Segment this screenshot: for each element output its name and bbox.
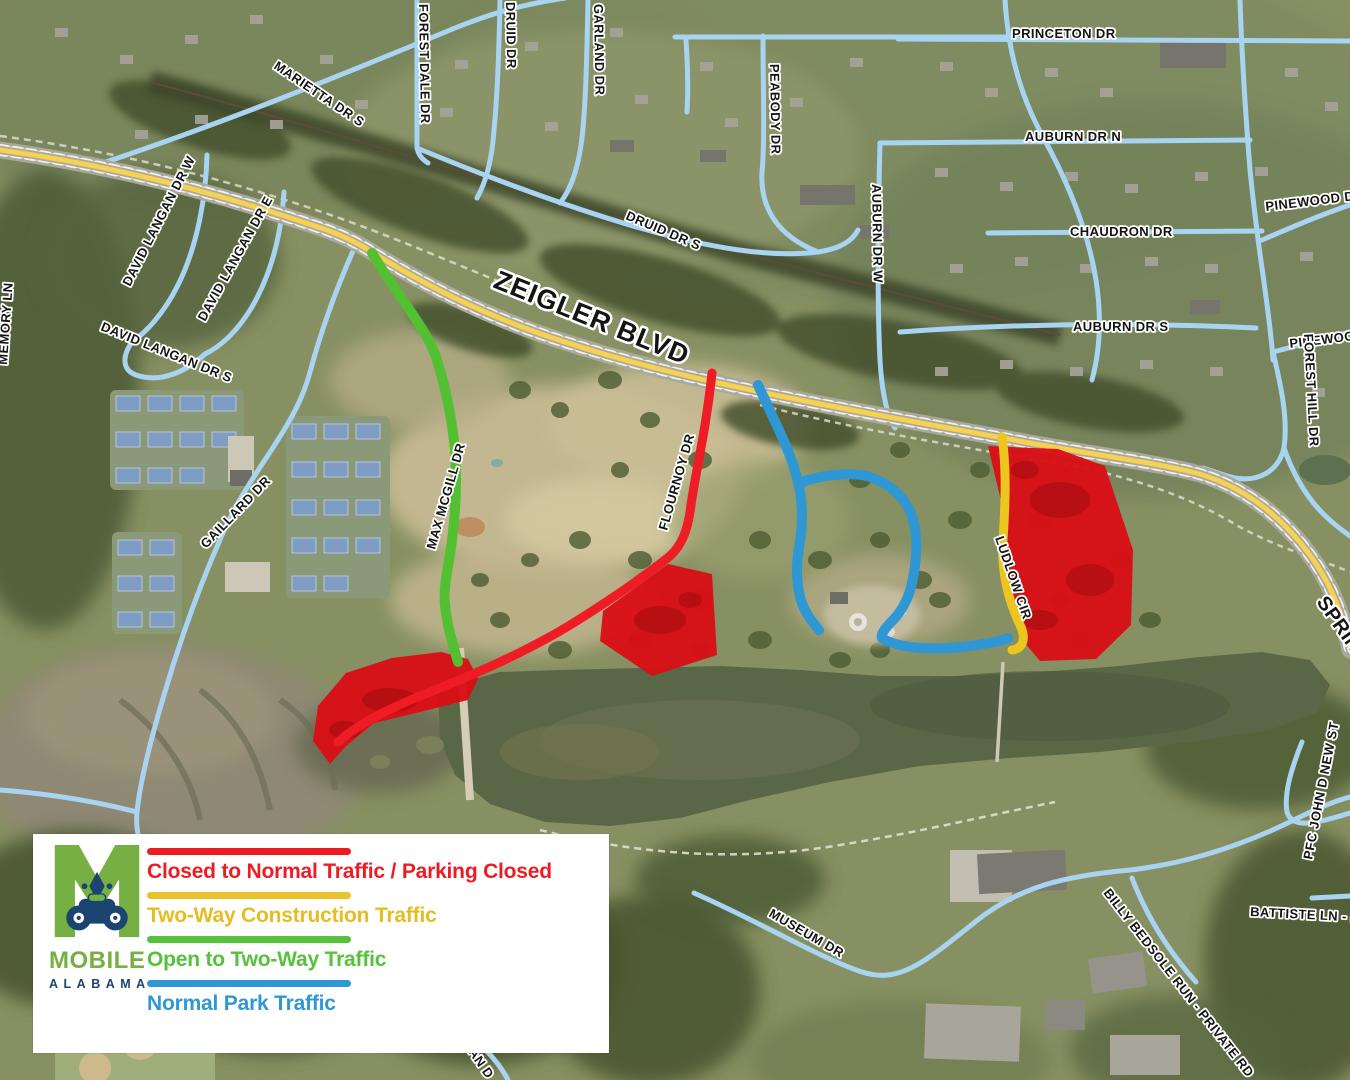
legend-item-construction: Two-Way Construction Traffic: [147, 892, 601, 928]
legend-label-open: Open to Two-Way Traffic: [147, 948, 601, 972]
dirt-patch: [455, 517, 485, 537]
legend-label-construction: Two-Way Construction Traffic: [147, 904, 601, 928]
street-label-princeton: PRINCETON DR: [1012, 26, 1116, 41]
legend-line-closed-icon: [147, 848, 351, 855]
street-label-forest-dale: FOREST DALE DR: [416, 4, 433, 124]
mobile-m-logo-icon: [49, 842, 145, 942]
pond: [1299, 455, 1350, 485]
legend-item-open: Open to Two-Way Traffic: [147, 936, 601, 972]
legend-line-normal-icon: [147, 980, 351, 987]
legend-panel: MOBILE ALABAMA Closed to Normal Traffic …: [33, 834, 609, 1053]
street-label-auburn-w: AUBURN DR W: [869, 184, 886, 284]
street-label-peabody: PEABODY DR: [767, 64, 784, 155]
street-label-garland: GARLAND DR: [591, 4, 608, 96]
legend-line-open-icon: [147, 936, 351, 943]
road-princeton: [898, 39, 1350, 41]
road-culdesac: [686, 40, 688, 112]
legend-item-closed: Closed to Normal Traffic / Parking Close…: [147, 848, 601, 884]
street-label-chaudron: CHAUDRON DR: [1070, 224, 1173, 239]
legend-items: Closed to Normal Traffic / Parking Close…: [147, 848, 601, 1025]
street-label-druid: DRUID DR: [503, 2, 519, 69]
legend-item-normal: Normal Park Traffic: [147, 980, 601, 1016]
parking-lot: [225, 562, 270, 592]
legend-line-construction-icon: [147, 892, 351, 899]
street-label-auburn-n: AUBURN DR N: [1025, 129, 1121, 144]
legend-label-closed: Closed to Normal Traffic / Parking Close…: [147, 860, 601, 884]
street-label-auburn-s: AUBURN DR S: [1073, 319, 1168, 334]
legend-label-normal: Normal Park Traffic: [147, 992, 601, 1016]
road-battiste: [1312, 896, 1350, 898]
small-pond: [491, 459, 503, 467]
map-screenshot: MARIETTA DR S FOREST DALE DR DRUID DR GA…: [0, 0, 1350, 1080]
